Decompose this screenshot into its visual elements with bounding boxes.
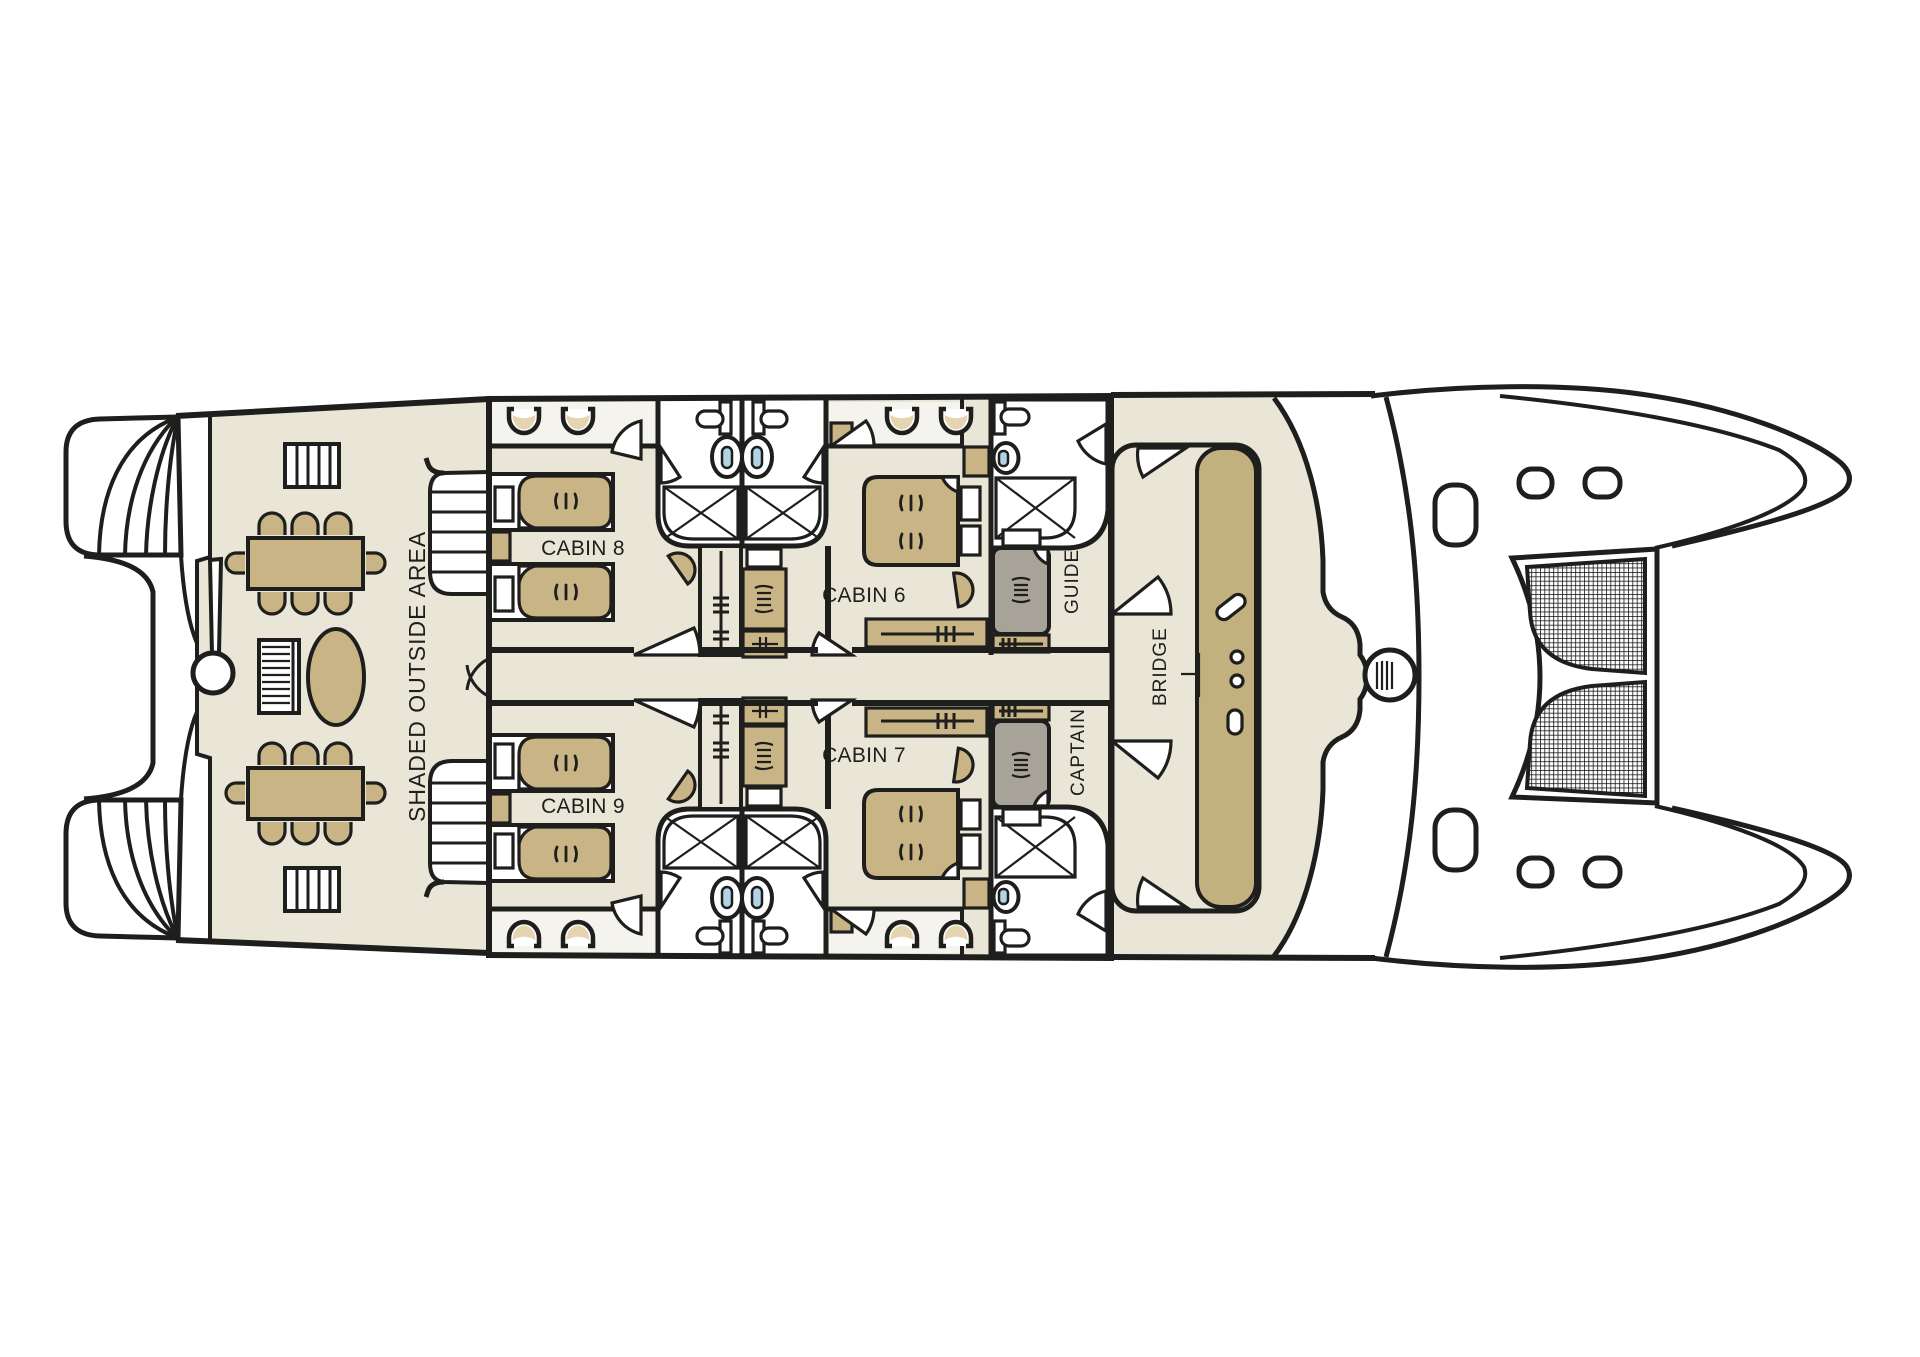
svg-text:CABIN 8: CABIN 8 [541, 537, 625, 560]
svg-text:CABIN 9: CABIN 9 [541, 795, 625, 818]
svg-text:CABIN 7: CABIN 7 [822, 744, 906, 767]
svg-text:CABIN 6: CABIN 6 [822, 584, 906, 607]
svg-text:BRIDGE: BRIDGE [1150, 627, 1171, 706]
svg-text:CAPTAIN: CAPTAIN [1068, 708, 1089, 796]
svg-text:SHADED OUTSIDE AREA: SHADED OUTSIDE AREA [404, 531, 430, 822]
svg-text:GUIDE: GUIDE [1062, 549, 1083, 614]
